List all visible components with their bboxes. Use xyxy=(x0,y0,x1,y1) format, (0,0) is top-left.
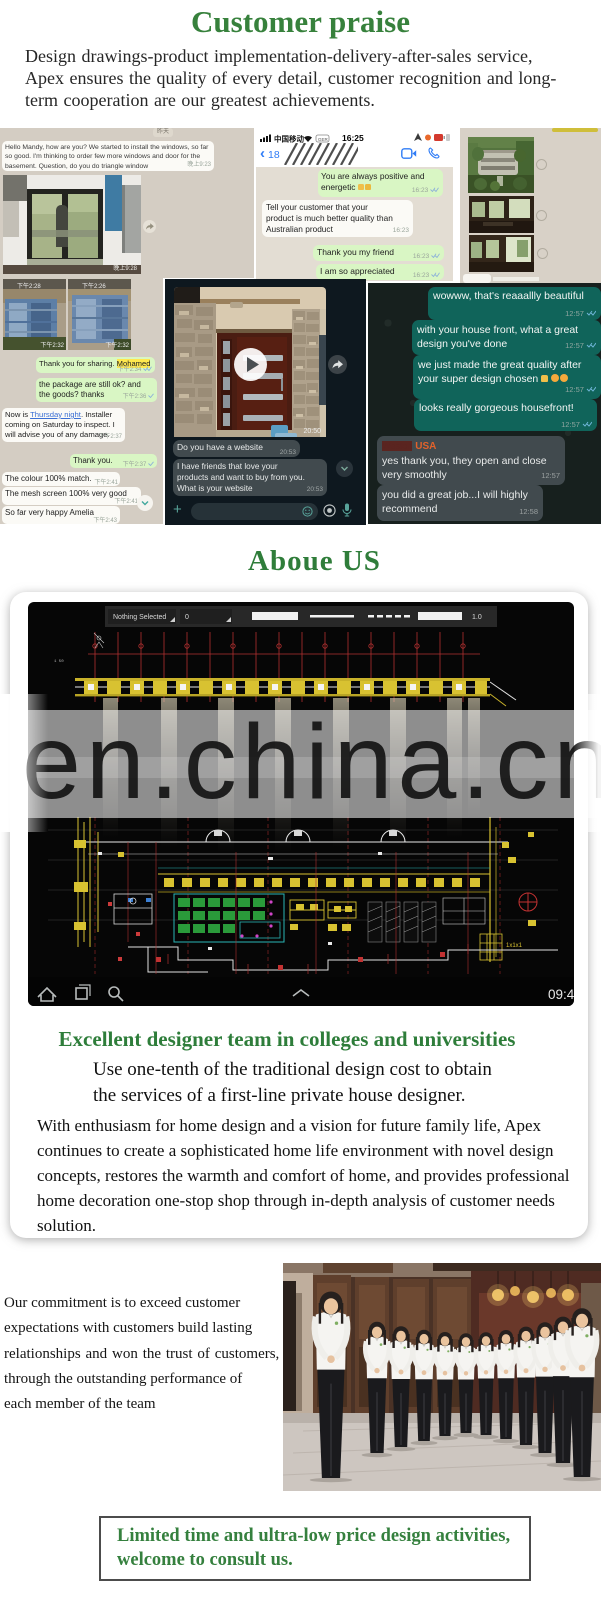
svg-text:1.0: 1.0 xyxy=(472,614,482,621)
svg-text:1x1x1: 1x1x1 xyxy=(506,943,523,949)
svg-text:09:4: 09:4 xyxy=(548,987,574,1002)
svg-text:中国移动: 中国移动 xyxy=(274,134,304,144)
svg-text:GER: GER xyxy=(318,137,329,142)
svg-text:1 50: 1 50 xyxy=(54,660,64,664)
svg-text:0: 0 xyxy=(185,614,189,621)
svg-text:Nothing Selected: Nothing Selected xyxy=(113,614,166,621)
